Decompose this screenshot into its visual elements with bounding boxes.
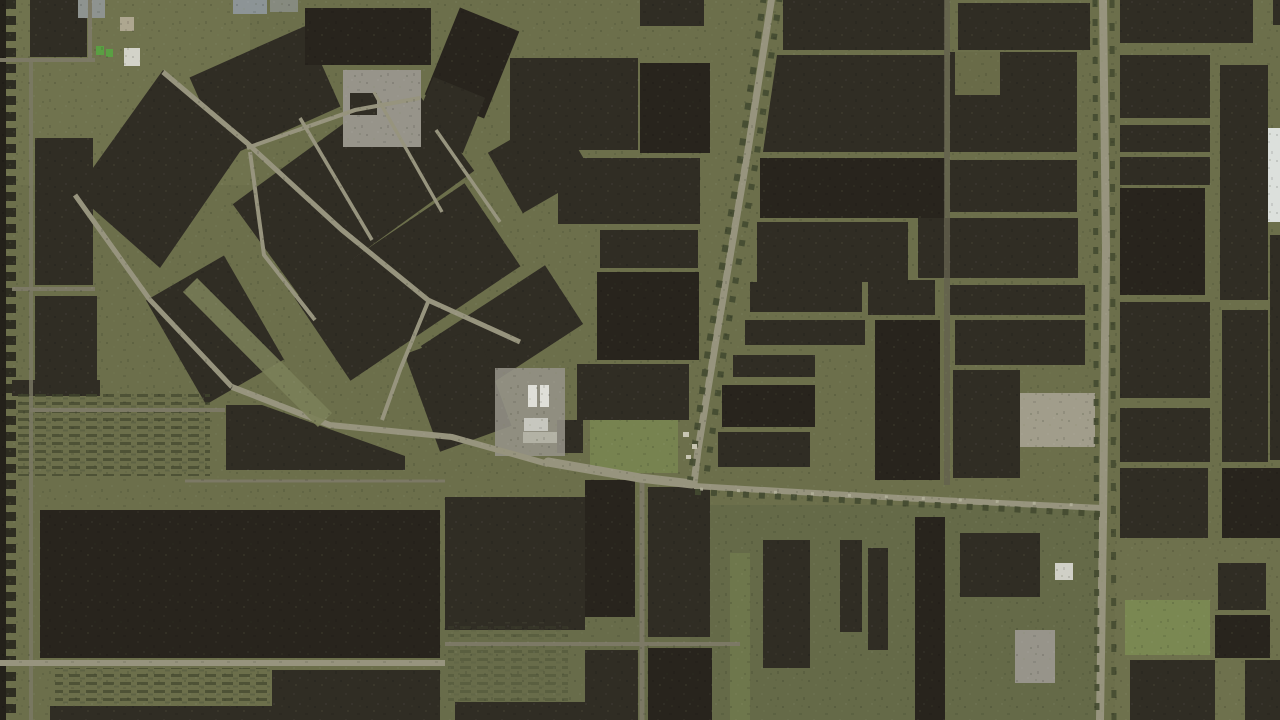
map-shape-layer <box>0 0 1280 720</box>
farm-map-aerial-view <box>0 0 1280 720</box>
screenshot-root <box>0 0 1280 720</box>
noise-overlay <box>0 0 1280 720</box>
